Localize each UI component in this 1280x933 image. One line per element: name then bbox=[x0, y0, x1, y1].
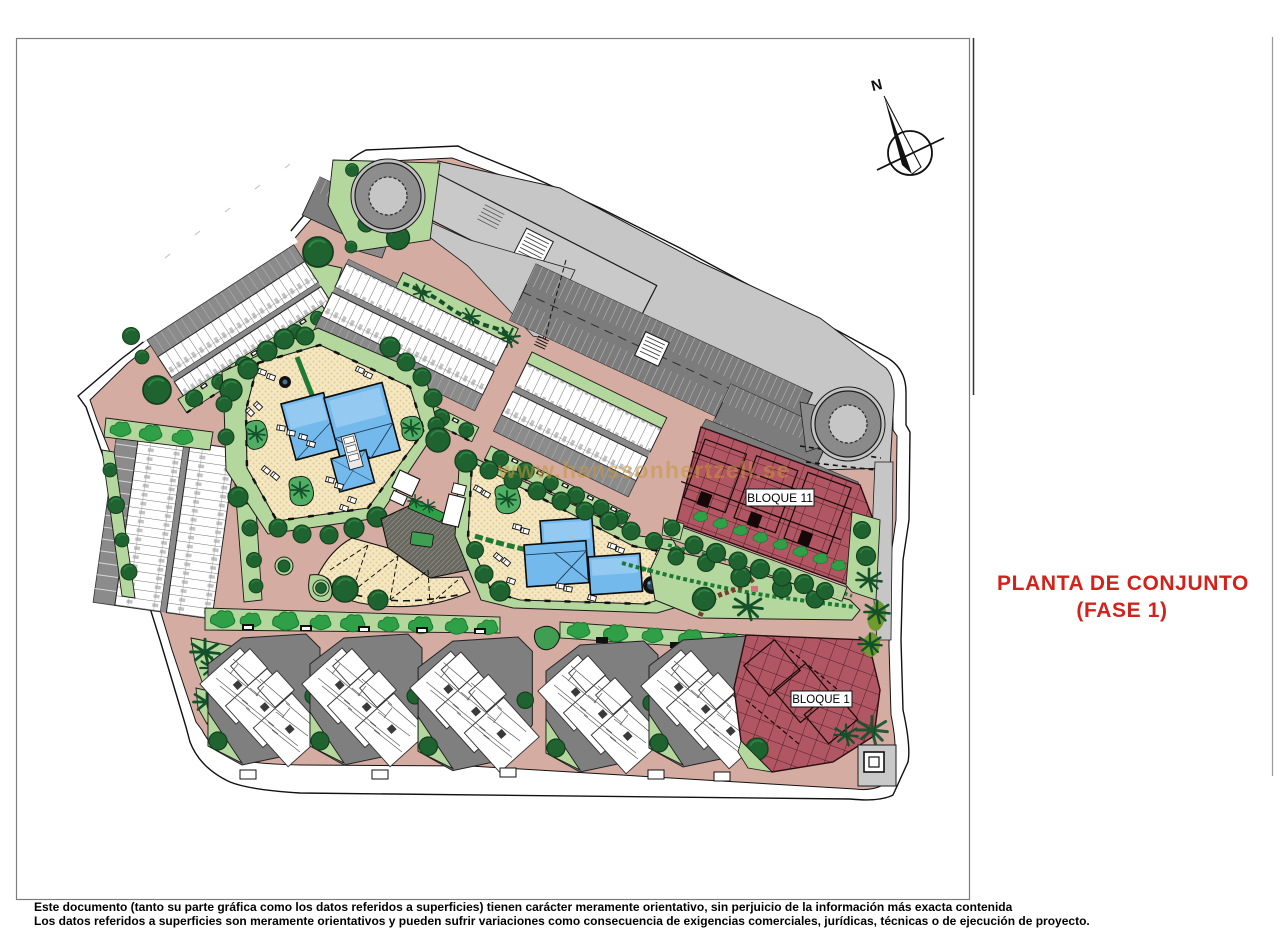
svg-text:www.hanssonhertzell.se: www.hanssonhertzell.se bbox=[497, 457, 791, 483]
svg-text:Este documento (tanto su parte: Este documento (tanto su parte gráfica c… bbox=[34, 900, 1013, 914]
svg-text:PLANTA DE CONJUNTO: PLANTA DE CONJUNTO bbox=[997, 572, 1249, 595]
svg-text:Los datos referidos a superfic: Los datos referidos a superficies son me… bbox=[34, 914, 1090, 928]
svg-text:BLOQUE 1: BLOQUE 1 bbox=[792, 694, 850, 706]
svg-text:BLOQUE 11: BLOQUE 11 bbox=[747, 491, 813, 505]
svg-text:(FASE 1): (FASE 1) bbox=[1076, 599, 1167, 622]
